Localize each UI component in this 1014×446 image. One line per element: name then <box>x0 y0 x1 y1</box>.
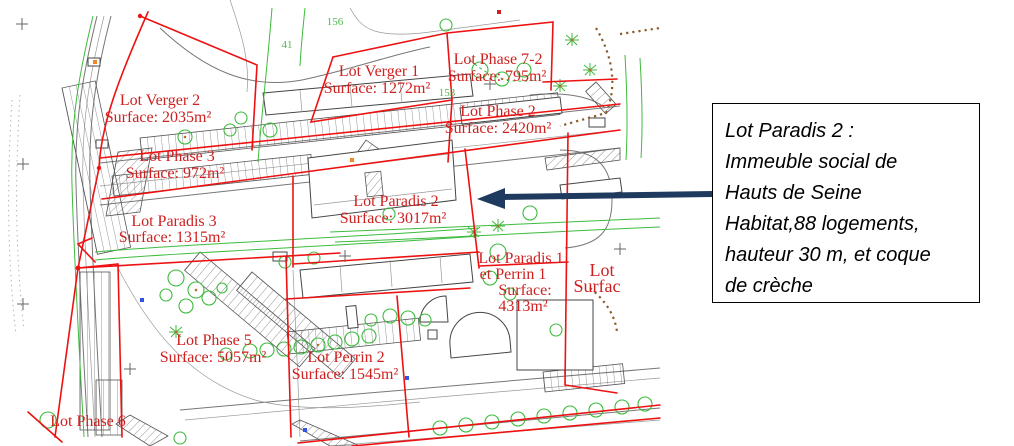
callout-line: Lot Paradis 2 : <box>725 116 969 147</box>
lot-paradis-1-line3: Surface: <box>498 282 551 299</box>
lot-phase-7-2-surface: Surface: 795m² <box>448 68 547 85</box>
lot-phase-3-name: Lot Phase 3 <box>139 148 215 165</box>
lot-paradis-3-surface: Surface: 1315m² <box>119 229 226 246</box>
lot-phase-5-name: Lot Phase 5 <box>176 332 252 349</box>
lot-paradis-1-name: Lot Paradis 1 <box>478 250 563 267</box>
parcel-number-156: 156 <box>327 16 344 28</box>
lot-phase-2-surface: Surface: 2420m² <box>445 120 552 137</box>
lot-phase-3-surface: Surface: 972m² <box>126 165 225 182</box>
callout-line: Hauts de Seine <box>725 178 969 209</box>
callout-line: Habitat,88 logements, <box>725 209 969 240</box>
lot-paradis-1-line2: et Perrin 1 <box>480 266 547 283</box>
callout-line: hauteur 30 m, et coque <box>725 240 969 271</box>
callout-line: de crèche <box>725 271 969 302</box>
arrow-head <box>477 188 505 209</box>
lot-perrin-2-surface: Surface: 1545m² <box>292 366 399 383</box>
lot-paradis-1-line4: 4313m² <box>498 298 547 315</box>
lot-verger-2-surface: Surface: 2035m² <box>105 109 212 126</box>
lot-verger-1-name: Lot Verger 1 <box>339 63 419 80</box>
callout-box: Lot Paradis 2 : Immeuble social de Hauts… <box>712 103 980 303</box>
lot-phase-5-surface: Surface: 5057m² <box>160 349 267 366</box>
site-plan-screenshot: Lot Verger 2 Surface: 2035m² Lot Verger … <box>0 0 1014 446</box>
lot-paradis-2-surface: Surface: 3017m² <box>340 210 447 227</box>
lot-phase-2-name: Lot Phase 2 <box>460 103 536 120</box>
callout-line: Immeuble social de <box>725 147 969 178</box>
parcel-number-153: 153 <box>439 87 456 99</box>
lot-verger-1-surface: Surface: 1272m² <box>324 80 431 97</box>
lot-perrin-2-name: Lot Perrin 2 <box>307 349 384 366</box>
lot-phase-7-2-name: Lot Phase 7-2 <box>454 51 543 68</box>
lot-paradis-2-name: Lot Paradis 2 <box>353 193 438 210</box>
lot-truncated-surface: Surfac <box>574 276 621 296</box>
lot-phase-6-name: Lot Phase 6 <box>50 413 126 430</box>
lot-verger-2-name: Lot Verger 2 <box>120 92 200 109</box>
lot-paradis-3-name: Lot Paradis 3 <box>131 213 216 230</box>
parcel-number-41: 41 <box>282 39 293 51</box>
